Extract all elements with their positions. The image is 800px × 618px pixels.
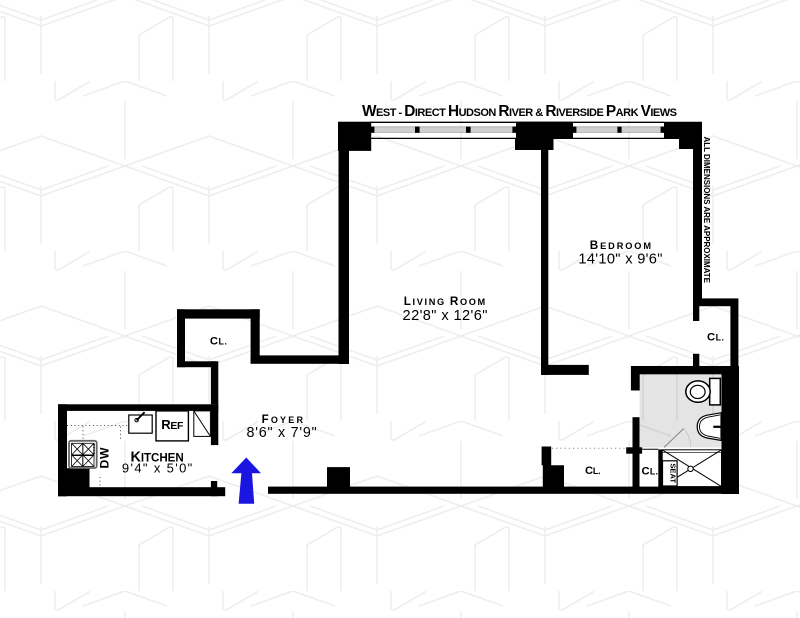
svg-text:CL.: CL. bbox=[210, 335, 227, 347]
svg-text:9'4" x 5'0": 9'4" x 5'0" bbox=[122, 461, 193, 476]
svg-text:DW: DW bbox=[98, 447, 112, 469]
svg-text:CL.: CL. bbox=[707, 331, 724, 343]
svg-text:14'10" x 9'6": 14'10" x 9'6" bbox=[578, 252, 662, 268]
svg-text:22'8" x 12'6": 22'8" x 12'6" bbox=[403, 308, 488, 324]
svg-text:ALL DIMENSIONS ARE APPROXIMATE: ALL DIMENSIONS ARE APPROXIMATE bbox=[702, 137, 711, 284]
svg-text:CL.: CL. bbox=[641, 466, 658, 478]
svg-text:8'6" x 7'9": 8'6" x 7'9" bbox=[247, 425, 317, 441]
svg-text:SEAT: SEAT bbox=[668, 463, 677, 483]
svg-text:CL.: CL. bbox=[585, 465, 601, 477]
